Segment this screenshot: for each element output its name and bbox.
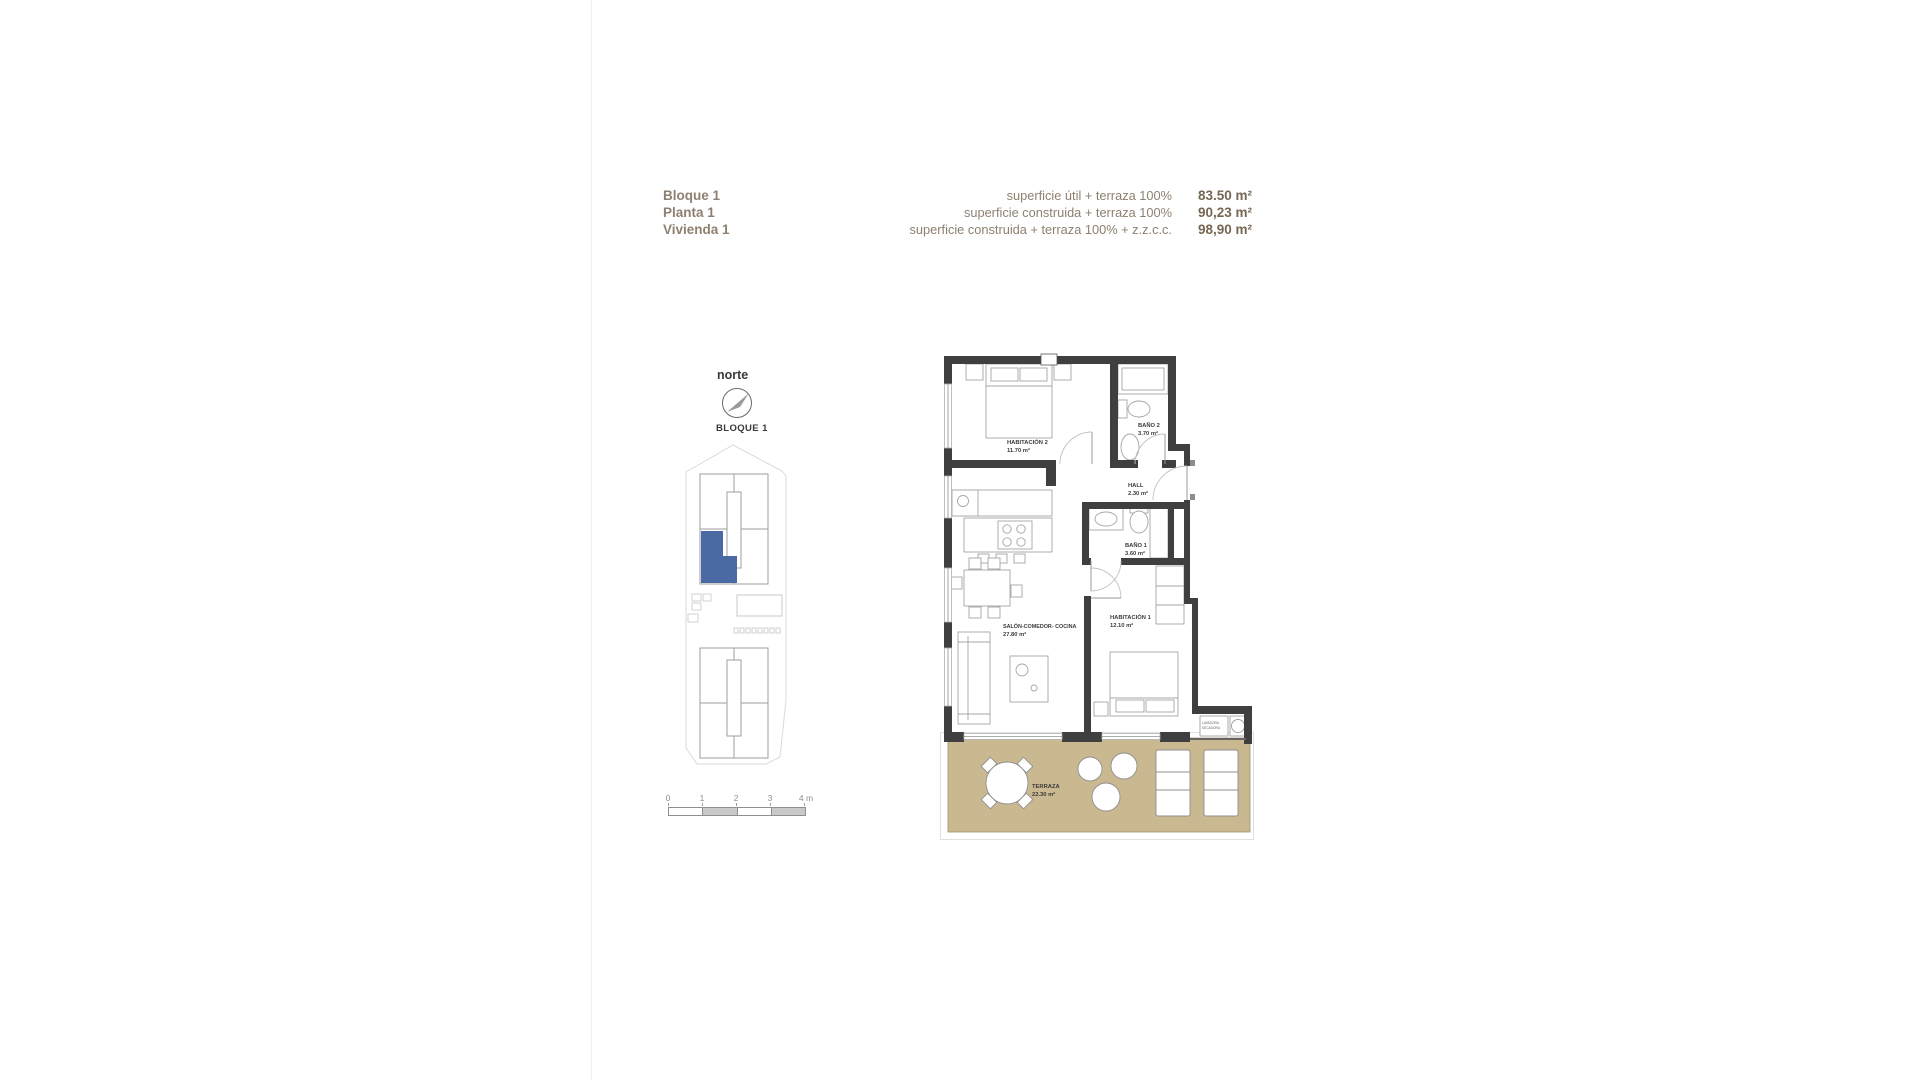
block-label: Bloque 1 [663,187,730,204]
terrace [941,733,1254,840]
scale-bar: 0 1 2 3 4 m [664,793,820,821]
wardrobe [1156,566,1184,624]
room-area: 3.60 m² [1125,550,1145,557]
sink-unit [952,490,978,516]
chair [1011,585,1022,597]
room-area: 3.70 m² [1138,430,1158,437]
nightstand [1054,364,1071,380]
floor-plan: HABITACIÓN 2 11.70 m² BAÑO 2 3.70 m² HAL… [940,350,1258,846]
washbasin [1095,512,1117,526]
chair [969,558,981,569]
surface-label: superficie construida + terraza 100% + z… [820,221,1172,238]
chair [969,607,981,618]
surface-label: superficie útil + terraza 100% [820,187,1172,204]
nightstand [966,364,983,380]
stool [1014,554,1025,563]
floor-label: Planta 1 [663,204,730,221]
utility-label: SECADORA [1202,726,1221,730]
unit-identifier: Bloque 1 Planta 1 Vivienda 1 [663,187,730,238]
bed-1 [1094,566,1184,716]
site-plan [678,438,798,772]
toilet-bowl [1128,401,1150,417]
page-edge-line [591,0,592,1080]
plan-page: Bloque 1 Planta 1 Vivienda 1 superficie … [0,0,1920,1080]
bed-2 [966,364,1071,438]
surface-label: superficie construida + terraza 100% [820,204,1172,221]
site-plan-title: BLOQUE 1 [716,423,768,434]
terrace-pouf [1078,757,1102,781]
surface-row: superficie construida + terraza 100% 90,… [820,204,1252,221]
terrace-lounger [1204,750,1238,816]
room-name: BAÑO 1 [1125,542,1148,549]
room-area: 11.70 m² [1007,447,1030,454]
chair [988,607,1000,618]
compass-icon [718,384,758,424]
scale-tick-label: 3 [768,793,773,803]
stove [998,521,1032,549]
room-name: TERRAZA [1032,784,1061,790]
toilet-tank [1118,400,1127,418]
utility-label: LAVADORA [1202,721,1220,725]
scale-tick-label: 1 [700,793,705,803]
surface-row: superficie útil + terraza 100% 83.50 m² [820,187,1252,204]
surface-row: superficie construida + terraza 100% + z… [820,221,1252,238]
scale-tick-label: 4 m [799,793,813,803]
surface-value: 83.50 m² [1190,187,1252,204]
terrace-pouf [1111,753,1137,779]
scale-tick-label: 2 [734,793,739,803]
terrace-pouf [1092,783,1120,811]
room-name: BAÑO 2 [1138,422,1160,429]
north-label: norte [717,368,748,382]
room-area: 12.10 m² [1110,622,1133,629]
terrace-lounger [1156,750,1190,816]
scale-bar-segments [668,807,806,816]
sofa [958,632,990,724]
bathroom-2-fixtures [1118,364,1168,460]
nightstand [1094,702,1108,716]
surface-value: 90,23 m² [1190,204,1252,221]
chair [951,577,962,589]
room-name: SALÓN-COMEDOR- COCINA [1003,622,1076,630]
room-area: 22.30 m² [1032,791,1055,798]
dining-set [951,558,1022,618]
scale-tick-label: 0 [666,793,671,803]
room-name: HABITACIÓN 2 [1007,438,1048,446]
surface-value: 98,90 m² [1190,221,1252,238]
room-name: HABITACIÓN 1 [1110,613,1152,621]
dwelling-label: Vivienda 1 [663,221,730,238]
room-area: 27.80 m² [1003,631,1026,638]
toilet-bowl [1130,511,1148,533]
vent-box [1041,354,1057,365]
shower [1150,508,1168,558]
coffee-table [1010,656,1048,702]
room-name: HALL [1128,483,1144,489]
surface-table: superficie útil + terraza 100% 83.50 m² … [820,187,1252,238]
dining-table [964,570,1010,606]
kitchen [952,490,1052,563]
chair [988,558,1000,569]
living-set [958,632,1048,724]
room-area: 2.30 m² [1128,490,1148,497]
boiler-box [1230,716,1246,736]
furniture [951,364,1246,736]
